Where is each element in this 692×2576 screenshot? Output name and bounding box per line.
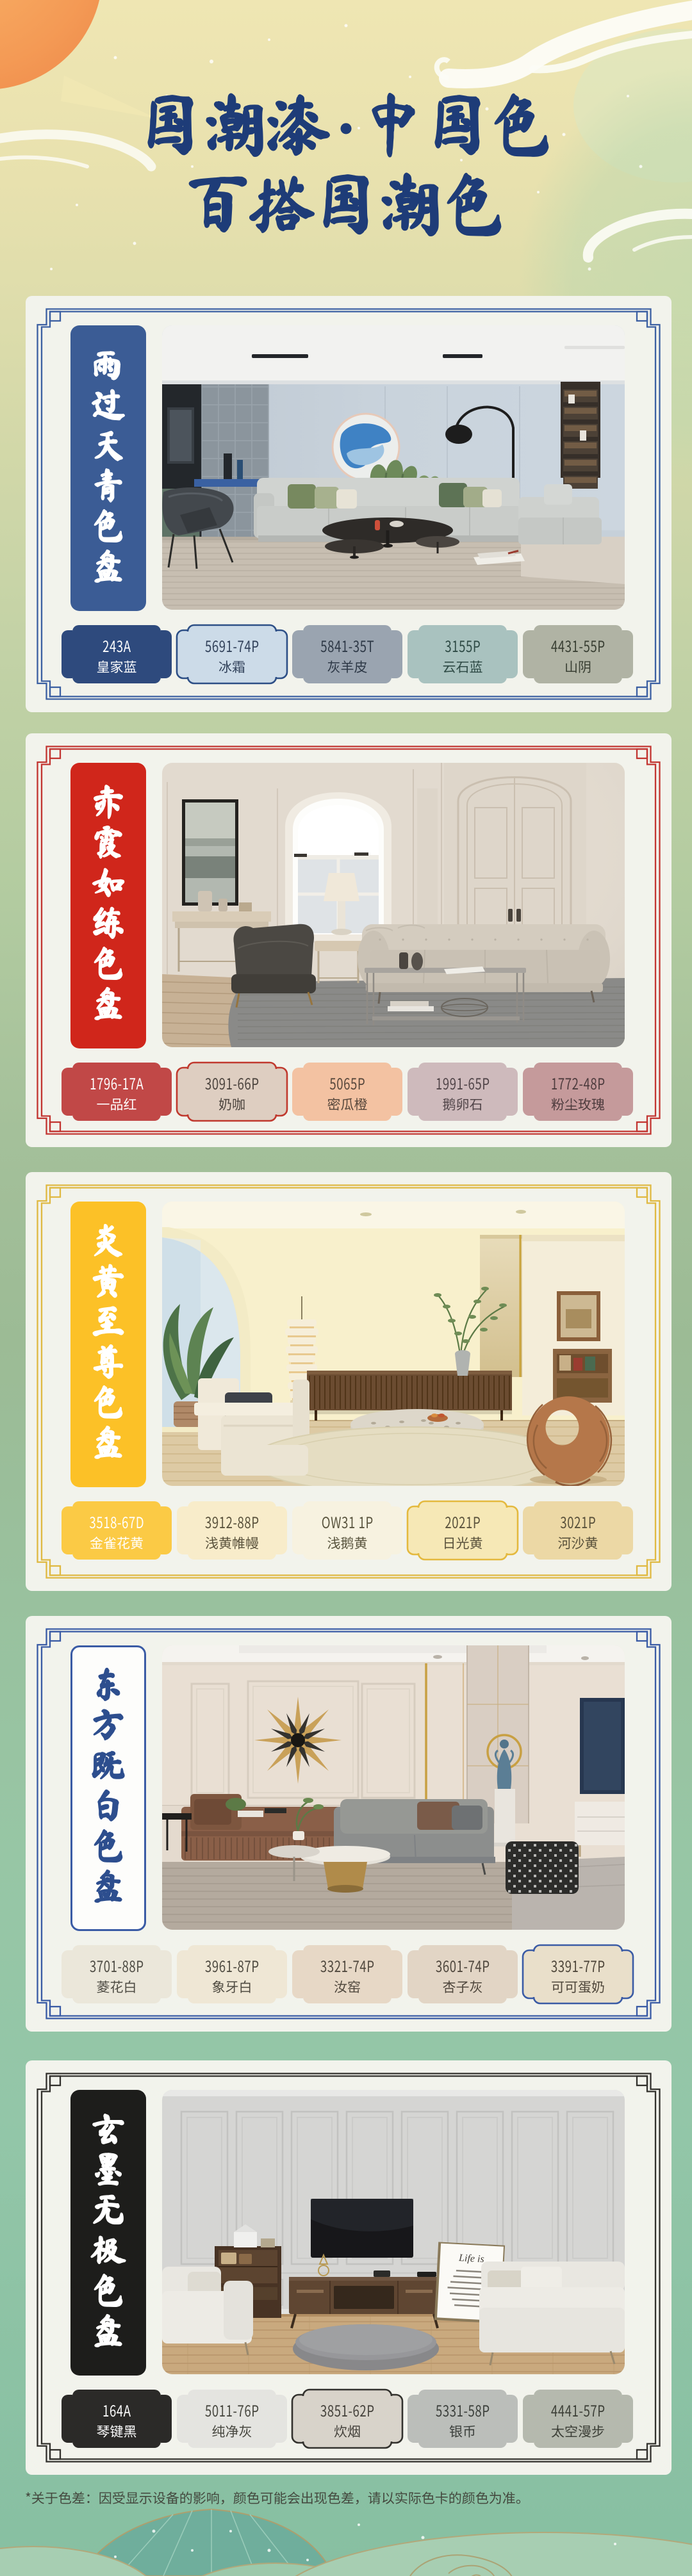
svg-text:Life is: Life is — [458, 2253, 484, 2265]
